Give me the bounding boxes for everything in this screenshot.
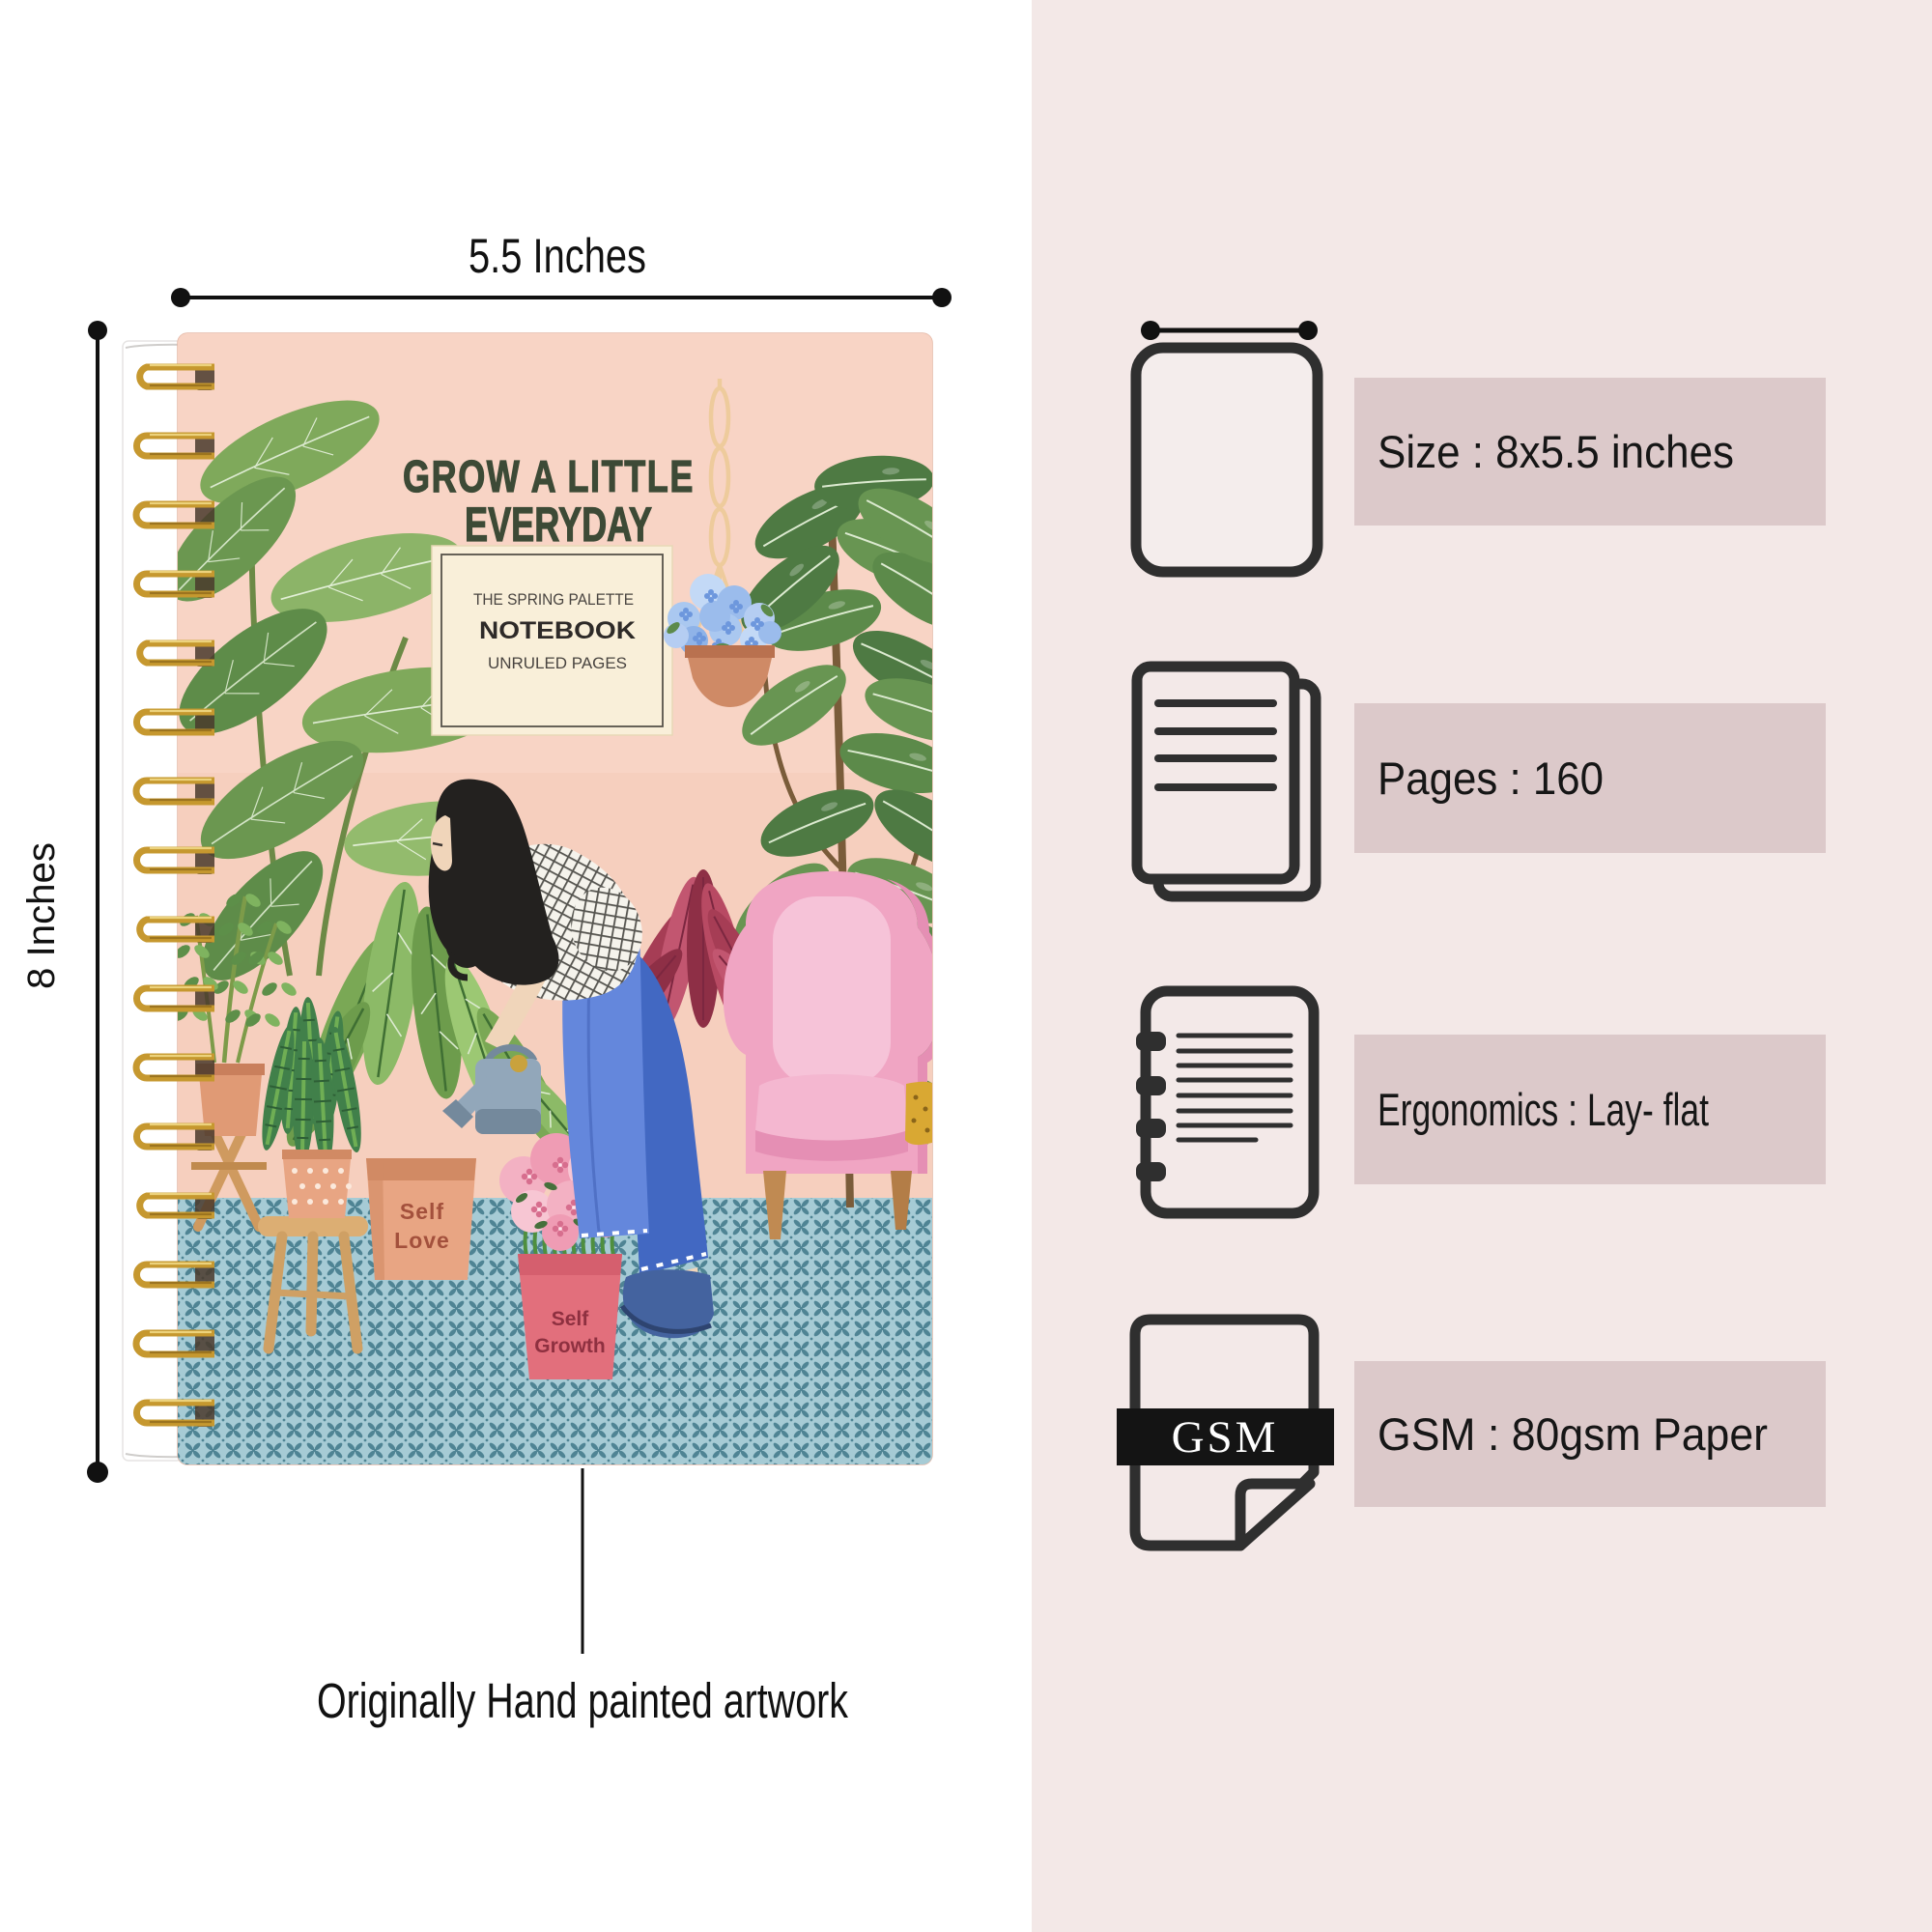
svg-text:5.5 Inches: 5.5 Inches bbox=[469, 229, 646, 283]
svg-text:THE SPRING PALETTE: THE SPRING PALETTE bbox=[473, 590, 634, 609]
svg-text:GROW A LITTLE: GROW A LITTLE bbox=[403, 451, 695, 501]
svg-text:GSM: GSM bbox=[1172, 1412, 1279, 1463]
svg-text:NOTEBOOK: NOTEBOOK bbox=[479, 617, 636, 644]
svg-text:Originally Hand painted art: Originally Hand painted artwork bbox=[317, 1673, 848, 1728]
svg-text:GSM : 80gsm Paper: GSM : 80gsm Paper bbox=[1378, 1408, 1768, 1460]
svg-text:Pages : 160: Pages : 160 bbox=[1378, 753, 1604, 804]
svg-text:Self: Self bbox=[552, 1308, 590, 1330]
svg-text:Growth: Growth bbox=[534, 1335, 606, 1357]
svg-text:Ergonomics : Lay- flat: Ergonomics : Lay- flat bbox=[1378, 1084, 1709, 1135]
svg-text:EVERYDAY: EVERYDAY bbox=[465, 497, 652, 552]
svg-text:8 Inches: 8 Inches bbox=[20, 842, 63, 989]
svg-text:UNRULED PAGES: UNRULED PAGES bbox=[488, 654, 627, 672]
svg-text:Self: Self bbox=[400, 1199, 444, 1224]
svg-text:Size : 8x5.5 inches: Size : 8x5.5 inches bbox=[1378, 426, 1734, 477]
svg-text:Love: Love bbox=[394, 1228, 450, 1253]
